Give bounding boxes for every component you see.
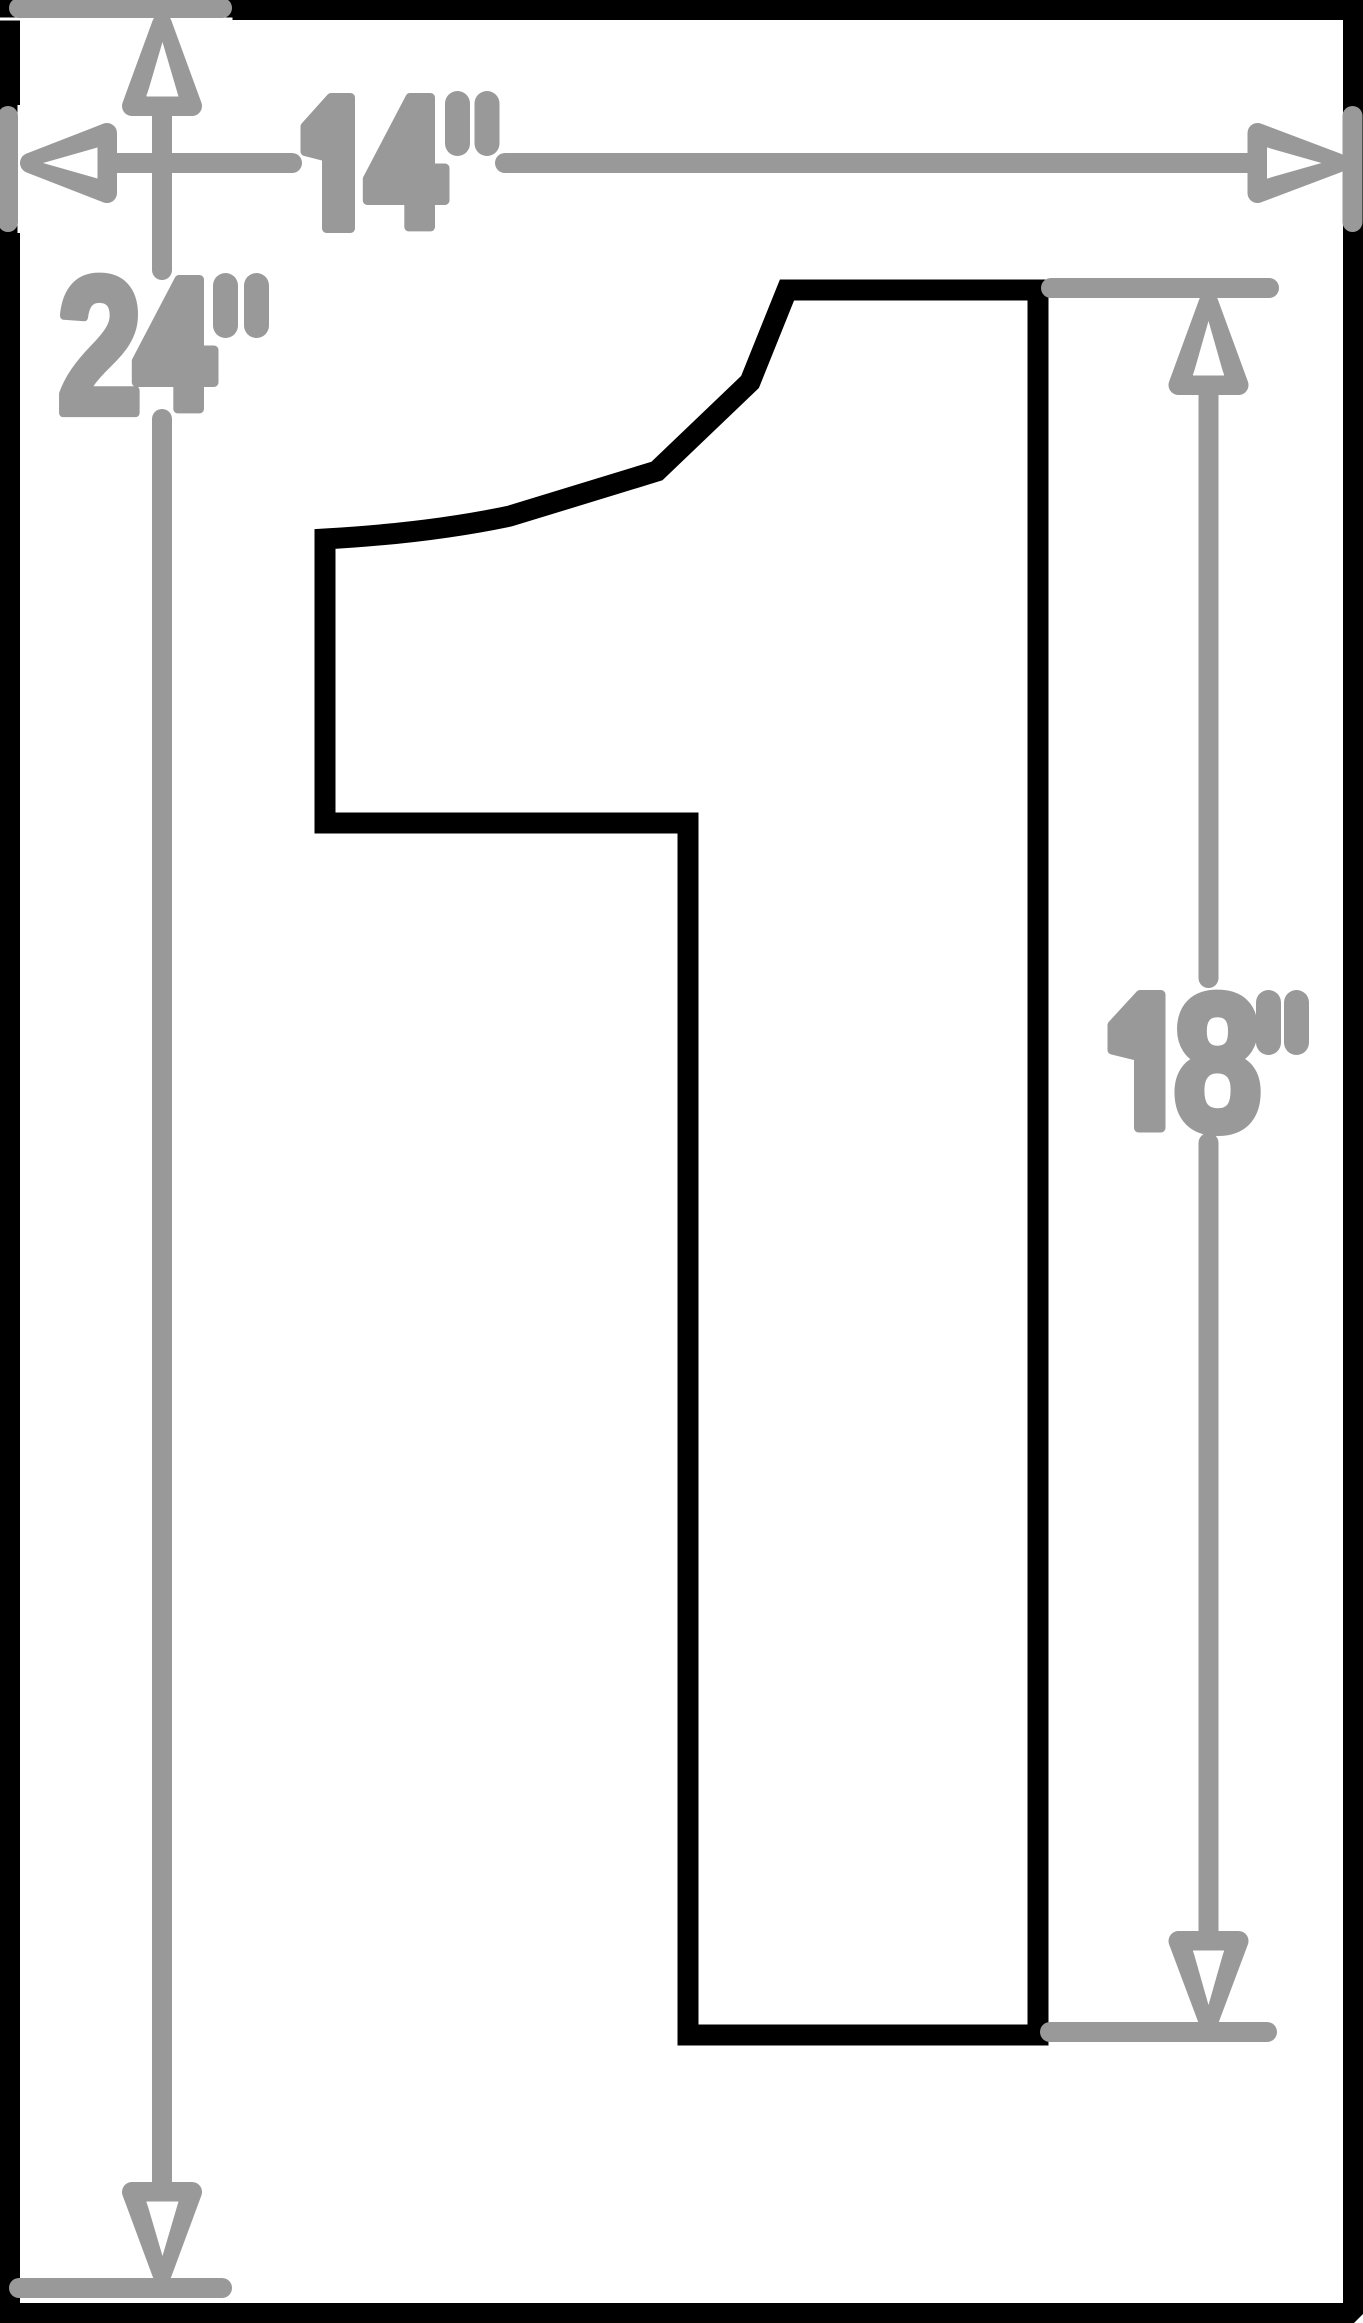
svg-text:2: 2 xyxy=(57,237,142,454)
svg-text:8: 8 xyxy=(1173,954,1262,1171)
